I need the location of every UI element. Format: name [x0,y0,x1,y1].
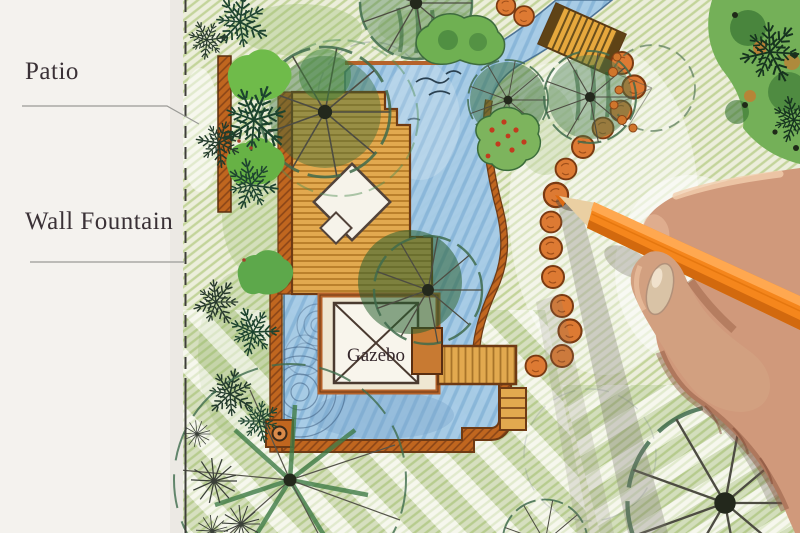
patio-label: Patio [25,58,79,86]
plan-drawing: Gazebo [0,0,800,533]
shrub [299,49,351,101]
steps [500,388,526,430]
gazebo-label: Gazebo [347,345,405,366]
wall-fountain-label: Wall Fountain [25,208,173,236]
garden-plan-photo: Gazebo Patio Wall Fountain [0,0,800,533]
boardwalk [438,346,516,384]
